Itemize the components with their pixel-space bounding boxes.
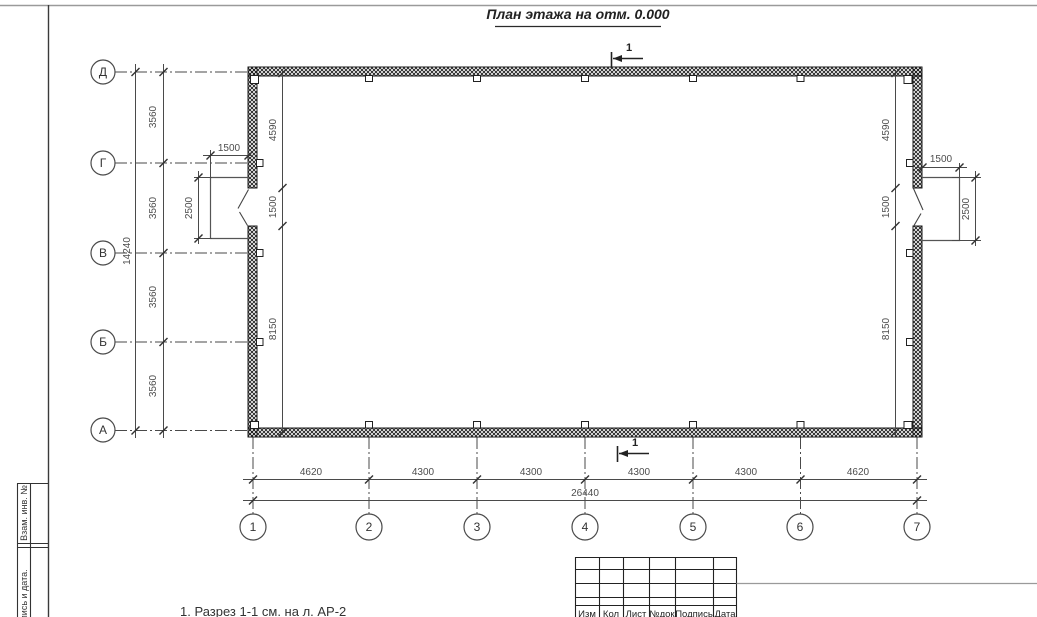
axis-grid-lines [115,72,917,514]
stamp-col-kol: Кол [603,609,619,617]
axis-col-label-7: 7 [914,520,921,534]
dim-col-total: 26440 [571,488,599,499]
dim-row-seg-2: 3560 [148,196,159,219]
dim-col-seg-5: 4300 [735,467,758,478]
section-arrow-icon [613,55,622,62]
axis-col-label-5: 5 [690,520,697,534]
walls [248,67,922,437]
porch-right [922,178,960,241]
section-mark-top: 1 [612,42,644,68]
stamp-col-data: Дата [714,609,736,617]
sheet-frame [0,5,1037,617]
dim-col-seg-3: 4300 [520,467,543,478]
title-block [576,557,1037,617]
axis-row-label-v: В [99,246,107,260]
dim-row-seg-4: 3560 [148,374,159,397]
dim-porch-right-depth: 2500 [961,197,972,220]
dim-porch-left-width: 1500 [218,143,241,154]
pilasters [251,76,914,429]
dim-wall-left-3: 8150 [268,317,279,340]
dim-col-seg-4: 4300 [628,467,651,478]
axis-row-label-a: А [99,423,107,437]
wall-top [248,67,922,76]
wall-right-lower [913,226,922,437]
section-arrow-icon [619,450,628,457]
axis-col-label-6: 6 [797,520,804,534]
wall-bottom [248,428,922,437]
title-block-labels: Изм Кол Лист №док Подпись Дата [578,609,736,617]
dim-row-seg-3: 3560 [148,285,159,308]
page-title: План этажа на отм. 0.000 [486,6,669,22]
dim-wall-left-1: 4590 [268,118,279,141]
dim-porch-left-depth: 2500 [184,196,195,219]
axis-col-label-2: 2 [366,520,373,534]
dim-row-seg-1: 3560 [148,105,159,128]
axis-col-label-4: 4 [582,520,589,534]
dim-col-seg-2: 4300 [412,467,435,478]
dim-wall-right-2: 1500 [881,195,892,218]
floor-plan-sheet: Взам. инв. № Подпись и дата. План этажа … [0,0,1037,617]
axis-col-label-3: 3 [474,520,481,534]
dim-col-seg-1: 4620 [300,467,323,478]
axis-row-label-d: Д [99,65,107,79]
axis-row-label-b: Б [99,335,107,349]
section-label-bottom: 1 [632,437,638,449]
axis-row-bubbles: Д Г В Б А [91,60,115,442]
dim-wall-right-3: 8150 [881,317,892,340]
stamp-col-podpis: Подпись [675,609,713,617]
drawing-note: 1. Разрез 1-1 см. на л. АР-2 [180,604,346,617]
dim-row-total: 14240 [122,237,133,265]
dimension-ticks [132,68,980,505]
wall-left-upper [248,67,257,188]
dim-col-seg-6: 4620 [847,467,870,478]
section-mark-bottom: 1 [618,437,650,462]
door-swings [238,189,923,226]
sidebar-label-vzam: Взам. инв. № [19,485,29,541]
drawing-title: План этажа на отм. 0.000 [486,6,669,27]
sidebar-label-podpis: Подпись и дата. [19,569,29,617]
dim-wall-right-1: 4590 [881,118,892,141]
stamp-col-izm: Изм [578,609,596,617]
axis-col-bubbles: 1 2 3 4 5 6 7 [240,514,930,540]
dim-wall-left-2: 1500 [268,195,279,218]
axis-col-label-1: 1 [250,520,257,534]
porch-left [211,178,249,239]
wall-left-lower [248,226,257,437]
section-label-top: 1 [626,42,632,54]
axis-row-label-g: Г [100,156,107,170]
stamp-col-list: Лист [626,609,647,617]
stamp-col-ndok: №док [649,609,675,617]
dim-porch-right-width: 1500 [930,154,953,165]
